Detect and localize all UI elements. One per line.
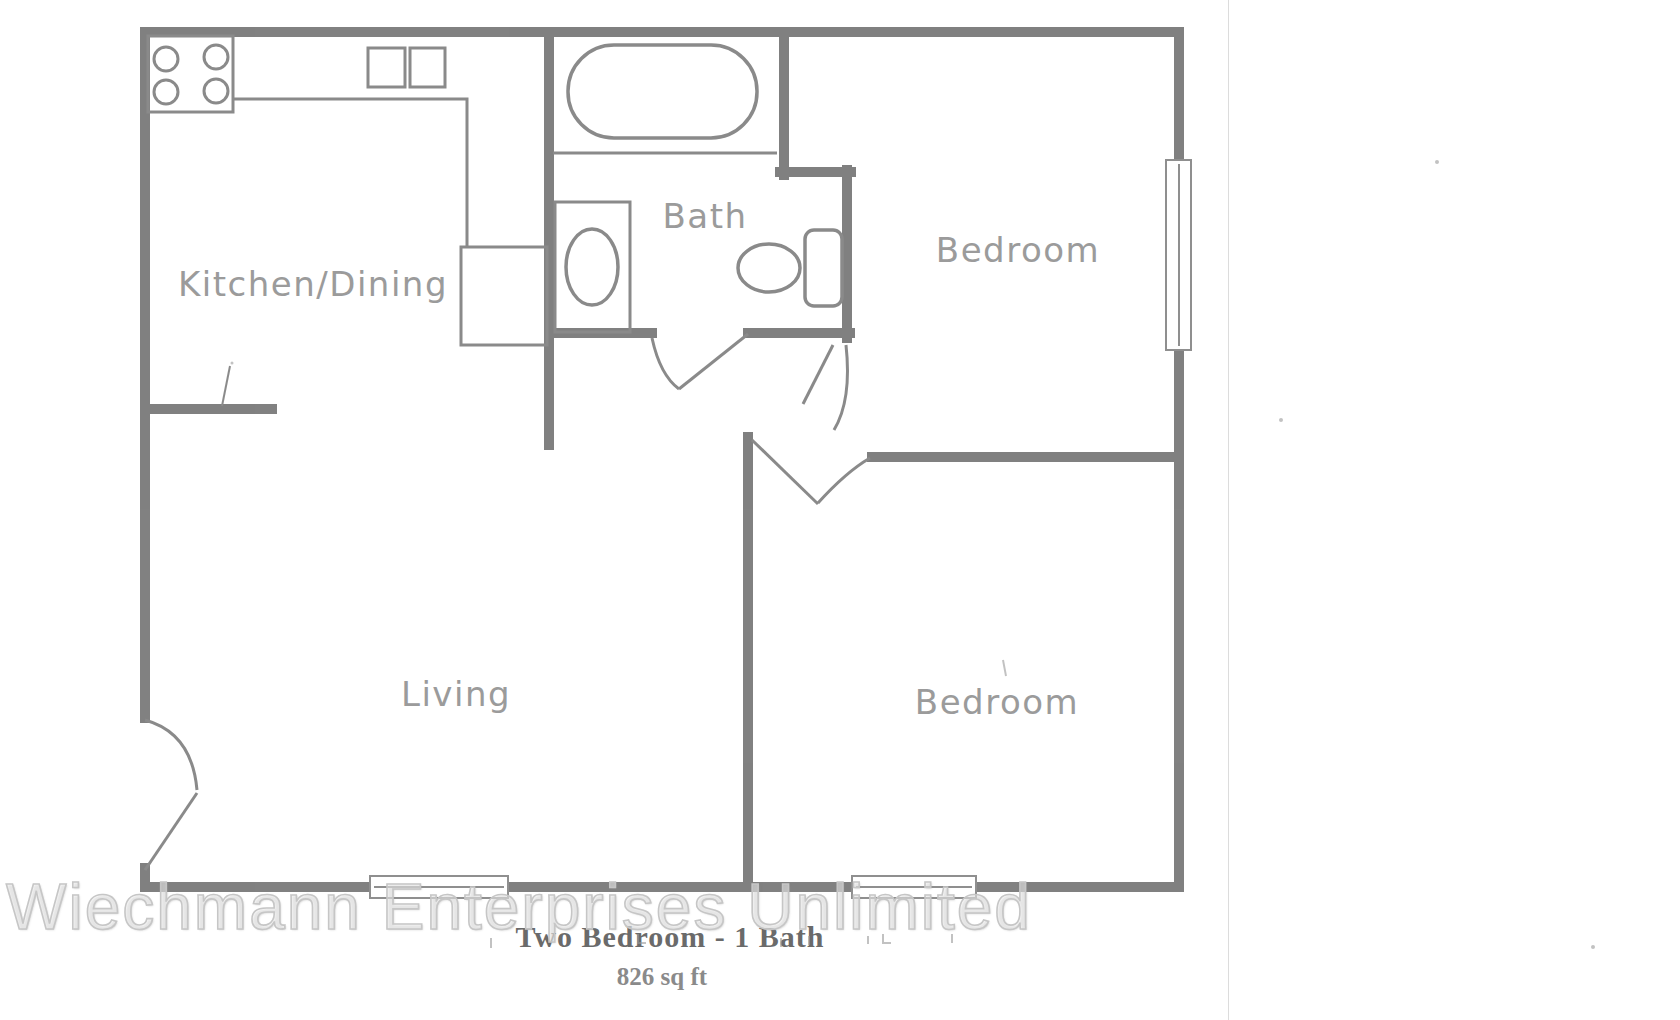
caption-area: 826 sq ft [617, 963, 708, 990]
doors [145, 334, 870, 870]
stove-burner-icon [154, 47, 178, 71]
watermark-text: Wiechmann Enterprises Unlimited [6, 870, 1032, 944]
room-label-living: Living [401, 674, 511, 714]
bathtub-icon [568, 45, 757, 138]
bath-door-swing-arc [652, 338, 679, 389]
toilet-tank-icon [805, 230, 842, 306]
entry-door-leaf [145, 793, 197, 870]
floor-plan-drawing: Kitchen/Dining Bath Bedroom Living Bedro… [0, 0, 1680, 1020]
bathroom-fixtures [553, 45, 842, 332]
bedroom2-door-leaf [752, 440, 818, 504]
vanity-sink-icon [566, 229, 618, 305]
bedroom2-door-swing-arc [818, 458, 870, 503]
walls [145, 32, 1179, 887]
windows [370, 160, 1191, 898]
scan-mark [222, 366, 230, 406]
stove-burner-icon [154, 80, 178, 104]
room-label-bedroom-2: Bedroom [915, 682, 1079, 722]
room-label-kitchen-dining: Kitchen/Dining [178, 264, 448, 304]
toilet-bowl-icon [738, 244, 800, 292]
bedroom1-door-swing-arc [834, 345, 848, 430]
room-label-bedroom-1: Bedroom [936, 230, 1100, 270]
bedroom1-door-leaf [803, 345, 833, 404]
stove-burner-icon [204, 45, 228, 69]
kitchen-fixtures [148, 36, 547, 406]
bath-door-leaf [679, 334, 748, 389]
room-label-bath: Bath [662, 196, 747, 236]
refrigerator-icon [461, 247, 547, 345]
counter-edge [233, 99, 467, 247]
scan-page-edge [1228, 0, 1229, 1020]
stove-burner-icon [204, 79, 228, 103]
kitchen-sink-basin-icon [368, 48, 405, 87]
entry-door-swing-arc [145, 720, 197, 790]
kitchen-sink-basin-icon [410, 48, 445, 87]
scanned-floor-plan-page: Kitchen/Dining Bath Bedroom Living Bedro… [0, 0, 1680, 1020]
